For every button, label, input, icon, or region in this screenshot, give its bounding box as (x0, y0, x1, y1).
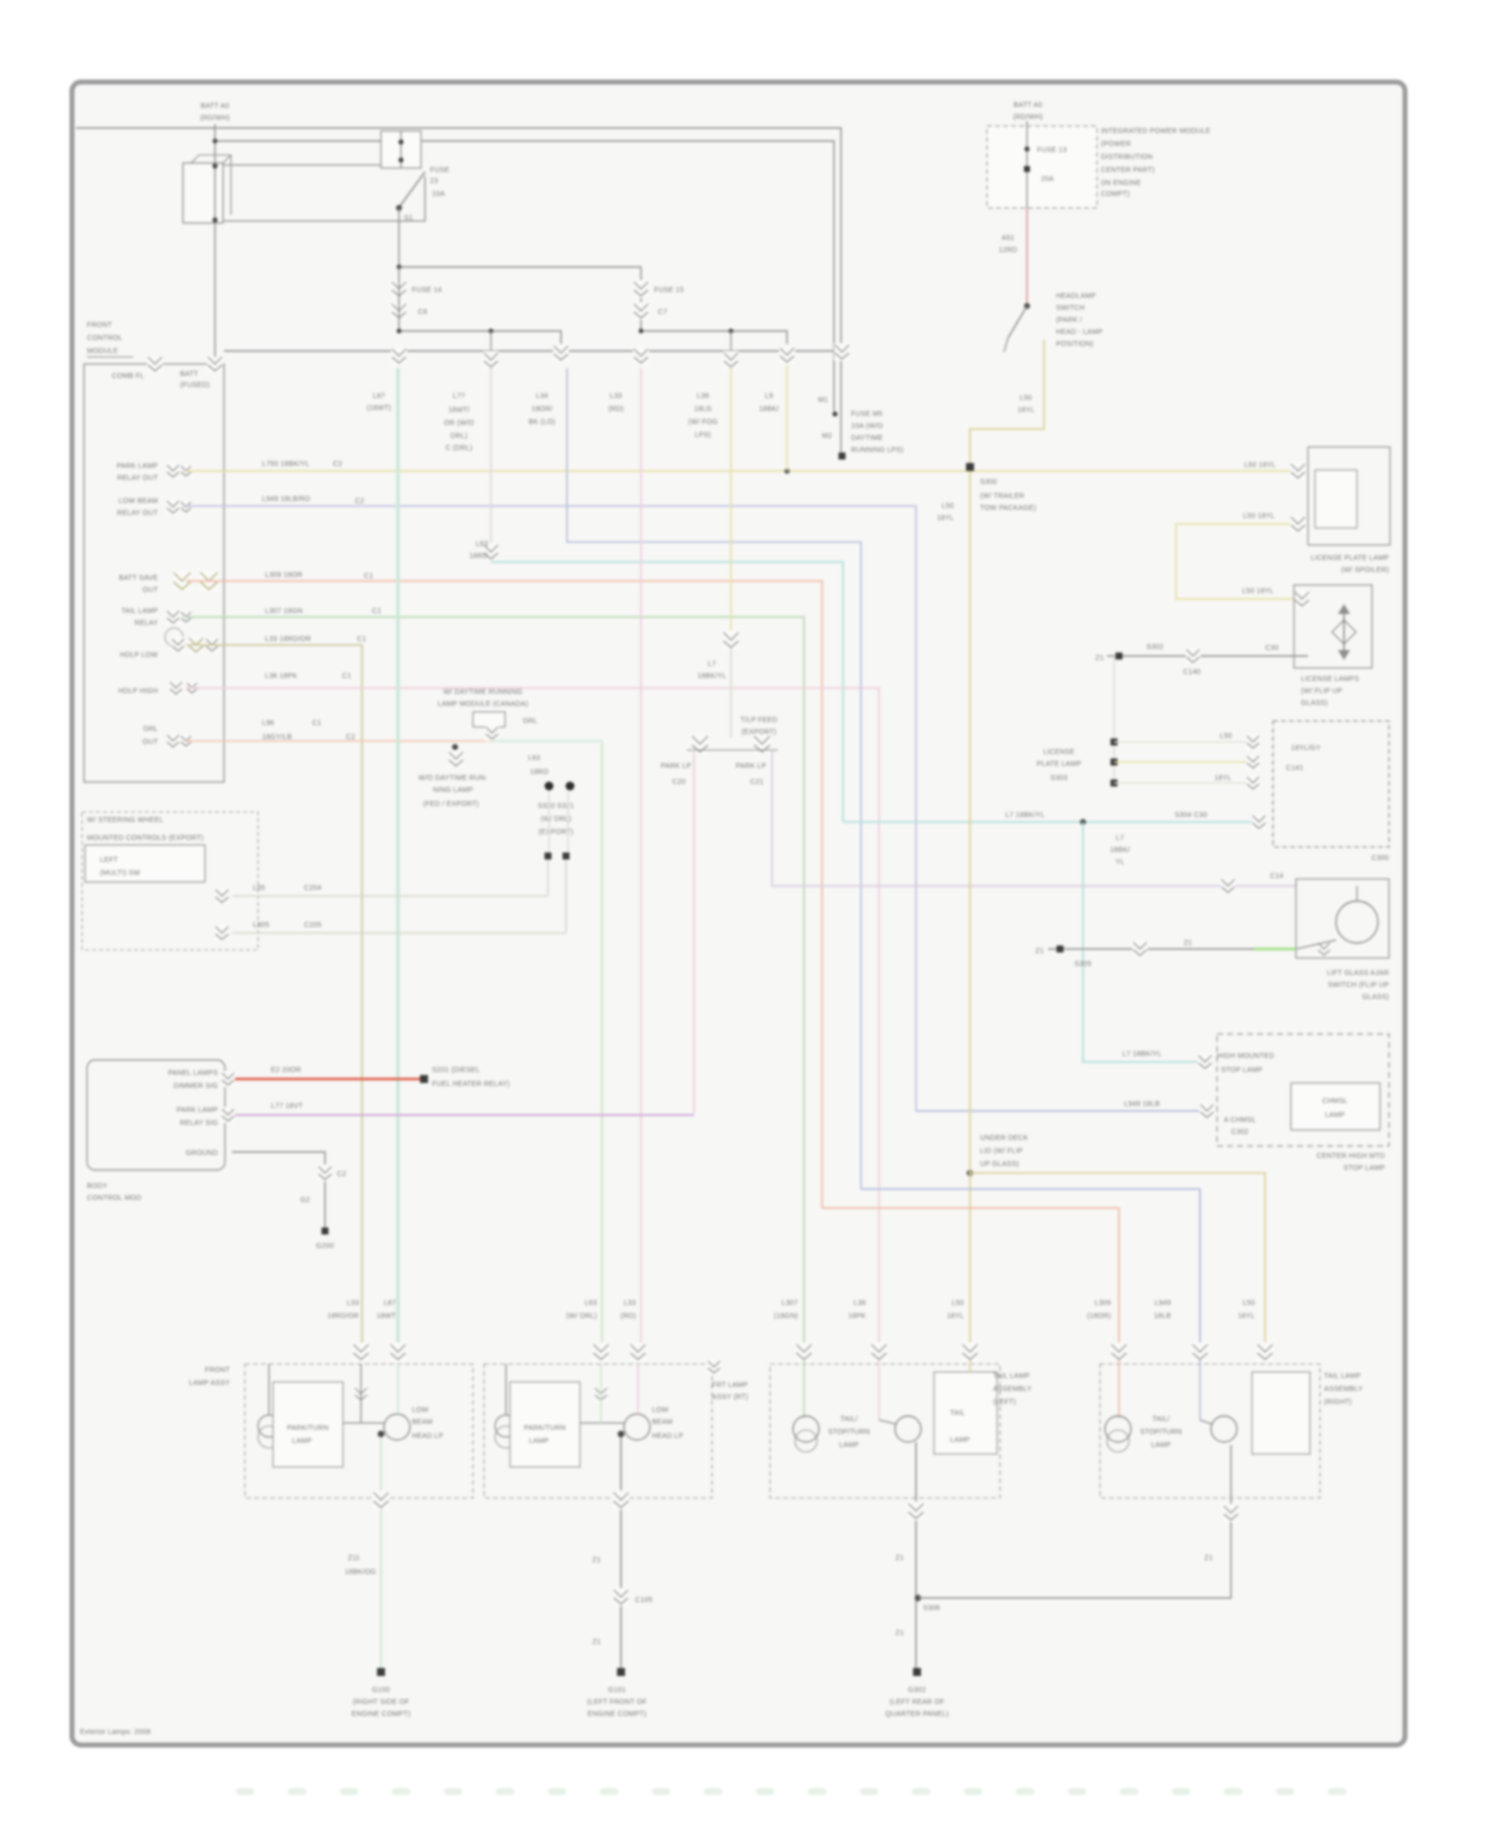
svg-text:Z1: Z1 (592, 1557, 601, 1564)
svg-text:L7 18BK/YL: L7 18BK/YL (1122, 1051, 1161, 1058)
svg-text:L7: L7 (1116, 835, 1124, 842)
svg-text:C7: C7 (658, 309, 667, 316)
svg-text:L34: L34 (536, 393, 548, 400)
svg-text:Z1: Z1 (1204, 1555, 1213, 1562)
svg-text:DRL: DRL (143, 726, 158, 733)
svg-text:TAIL/: TAIL/ (840, 1416, 857, 1423)
svg-text:Z1: Z1 (895, 1555, 904, 1562)
svg-text:18RD/OR: 18RD/OR (327, 1313, 359, 1320)
svg-text:C6: C6 (418, 309, 427, 316)
svg-text:FRONT: FRONT (205, 1367, 231, 1374)
svg-text:(LEFT REAR OF: (LEFT REAR OF (890, 1699, 945, 1706)
svg-text:L50: L50 (1220, 733, 1232, 740)
svg-text:L39: L39 (697, 393, 709, 400)
svg-text:G100: G100 (372, 1687, 390, 1694)
svg-text:RUNNING LPS): RUNNING LPS) (851, 447, 904, 454)
svg-text:LEFT: LEFT (100, 857, 118, 864)
svg-text:18GY/LB: 18GY/LB (262, 734, 292, 741)
svg-text:L36 18PK: L36 18PK (265, 673, 297, 680)
svg-text:C1: C1 (342, 673, 351, 680)
svg-text:C1: C1 (312, 720, 321, 727)
svg-text:(MULTI) SW: (MULTI) SW (100, 870, 141, 877)
svg-text:PARK/TURN: PARK/TURN (524, 1425, 566, 1432)
svg-text:LIFT GLASS AJAR: LIFT GLASS AJAR (1327, 970, 1389, 977)
svg-text:FRONT: FRONT (87, 322, 113, 329)
svg-text:18RD: 18RD (530, 769, 549, 776)
svg-text:C2: C2 (346, 734, 355, 741)
svg-text:G101: G101 (608, 1687, 626, 1694)
svg-text:(LEFT FRONT OF: (LEFT FRONT OF (587, 1699, 647, 1706)
svg-text:CENTER PART): CENTER PART) (1101, 167, 1154, 174)
svg-text:GLASS): GLASS) (1362, 994, 1389, 1001)
svg-text:(RD/WH): (RD/WH) (1013, 114, 1043, 121)
svg-text:L949 18LB/RD: L949 18LB/RD (262, 496, 310, 503)
svg-text:18YL: 18YL (1214, 775, 1231, 782)
svg-text:18BK/YL: 18BK/YL (697, 673, 726, 680)
svg-text:TAIL/: TAIL/ (1152, 1416, 1169, 1423)
svg-text:18YL: 18YL (937, 515, 954, 522)
svg-text:PARK LP: PARK LP (736, 763, 767, 770)
svg-text:LAMP: LAMP (950, 1437, 970, 1444)
svg-text:(W/ TRAILER: (W/ TRAILER (980, 493, 1024, 500)
svg-text:(FUSED): (FUSED) (180, 382, 210, 389)
svg-text:L50: L50 (952, 1300, 964, 1307)
svg-text:(W/ DRL): (W/ DRL) (566, 1313, 597, 1320)
svg-text:LAMP ASSY: LAMP ASSY (189, 1380, 230, 1387)
svg-text:LAMP MODULE (CANADA): LAMP MODULE (CANADA) (438, 701, 529, 708)
svg-text:C1: C1 (372, 608, 381, 615)
svg-text:23: 23 (430, 178, 438, 185)
svg-text:(18OR): (18OR) (1087, 1313, 1111, 1320)
svg-text:C30: C30 (1265, 645, 1278, 652)
svg-text:L307: L307 (782, 1300, 798, 1307)
svg-text:(POWER: (POWER (1101, 141, 1131, 148)
svg-text:A51: A51 (1001, 235, 1014, 242)
svg-text:L949: L949 (1155, 1300, 1171, 1307)
svg-text:C2: C2 (333, 461, 342, 468)
svg-text:L33: L33 (347, 1300, 359, 1307)
svg-text:L7 18BK/YL: L7 18BK/YL (1005, 812, 1044, 819)
svg-text:STOP/TURN: STOP/TURN (1140, 1429, 1182, 1436)
svg-text:L50: L50 (1020, 395, 1032, 402)
svg-text:C205: C205 (304, 922, 322, 929)
svg-text:L55: L55 (253, 885, 265, 892)
svg-text:ASSY (RT): ASSY (RT) (712, 1394, 748, 1401)
svg-text:L87: L87 (384, 1300, 396, 1307)
svg-text:(LEFT): (LEFT) (993, 1399, 1016, 1406)
svg-text:RELAY SIG: RELAY SIG (180, 1120, 218, 1127)
svg-text:RELAY OUT: RELAY OUT (117, 475, 158, 482)
svg-text:MOUNTED CONTROLS (EXPORT): MOUNTED CONTROLS (EXPORT) (87, 835, 204, 842)
svg-text:L309 18OR: L309 18OR (265, 572, 303, 579)
svg-text:COMPT): COMPT) (1101, 191, 1130, 198)
svg-text:(RD): (RD) (620, 1313, 636, 1320)
svg-text:HEAD - LAMP: HEAD - LAMP (1056, 329, 1103, 336)
svg-text:T/LP FEED: T/LP FEED (740, 717, 777, 724)
svg-text:L50 18YL: L50 18YL (1243, 513, 1275, 520)
svg-text:18YL: 18YL (947, 1313, 964, 1320)
svg-text:L63: L63 (476, 541, 488, 548)
svg-text:ASSEMBLY: ASSEMBLY (1324, 1386, 1363, 1393)
svg-text:L87: L87 (373, 393, 385, 400)
svg-text:L309: L309 (1095, 1300, 1111, 1307)
svg-text:BATT A0: BATT A0 (201, 103, 230, 110)
svg-text:HEAD LP: HEAD LP (652, 1433, 683, 1440)
svg-text:BK (LO): BK (LO) (529, 419, 556, 426)
svg-text:UP GLASS): UP GLASS) (980, 1161, 1019, 1168)
svg-text:18WT: 18WT (377, 1313, 397, 1320)
svg-text:PARK LP: PARK LP (661, 763, 692, 770)
svg-text:L750 18BK/YL: L750 18BK/YL (262, 461, 310, 468)
svg-text:PANEL LAMPS: PANEL LAMPS (168, 1070, 218, 1077)
svg-text:Z1: Z1 (1095, 655, 1104, 662)
svg-text:18LB: 18LB (1154, 1313, 1171, 1320)
svg-text:C300: C300 (1371, 855, 1389, 862)
svg-text:BATT: BATT (180, 371, 199, 378)
svg-text:BEAM: BEAM (412, 1419, 433, 1426)
svg-text:Z1: Z1 (895, 1630, 904, 1637)
svg-text:L50: L50 (1243, 1300, 1255, 1307)
svg-text:PARK LAMP: PARK LAMP (177, 1107, 218, 1114)
svg-text:18YL: 18YL (1017, 407, 1034, 414)
svg-text:C302: C302 (1231, 1129, 1249, 1136)
svg-text:L33 18RD/OR: L33 18RD/OR (265, 636, 311, 643)
svg-text:(W/ FOG: (W/ FOG (688, 419, 717, 426)
svg-text:FUSE 14: FUSE 14 (412, 287, 442, 294)
svg-text:C14: C14 (1270, 873, 1283, 880)
svg-text:L50 18YL: L50 18YL (1244, 462, 1276, 469)
svg-text:HDLP LOW: HDLP LOW (120, 652, 158, 659)
svg-text:18YL: 18YL (1238, 1313, 1255, 1320)
svg-text:DIMMER SIG: DIMMER SIG (174, 1083, 218, 1090)
svg-text:LAMP: LAMP (1151, 1442, 1171, 1449)
svg-text:G200: G200 (316, 1243, 334, 1250)
svg-text:L50 18YL: L50 18YL (1242, 588, 1274, 595)
svg-text:C2: C2 (355, 498, 364, 505)
svg-text:S304 C30: S304 C30 (1175, 812, 1208, 819)
svg-text:GROUND: GROUND (186, 1150, 218, 1157)
svg-text:LAMP: LAMP (1325, 1112, 1345, 1119)
svg-text:L96: L96 (262, 720, 274, 727)
svg-text:HEADLAMP: HEADLAMP (1056, 293, 1096, 300)
svg-text:FUEL HEATER RELAY): FUEL HEATER RELAY) (432, 1081, 510, 1088)
svg-text:C (DRL): C (DRL) (445, 445, 472, 452)
svg-text:CONTROL: CONTROL (87, 335, 123, 342)
svg-text:NING LAMP: NING LAMP (433, 787, 473, 794)
svg-text:FUSE M5: FUSE M5 (851, 411, 883, 418)
svg-text:L33: L33 (624, 1300, 636, 1307)
svg-text:HDLP HIGH: HDLP HIGH (118, 688, 158, 695)
svg-text:18RD: 18RD (469, 553, 488, 560)
svg-text:S302: S302 (1146, 644, 1163, 651)
svg-text:DAYTIME: DAYTIME (851, 435, 883, 442)
svg-text:(W/ FLIP UP: (W/ FLIP UP (1301, 688, 1342, 695)
svg-text:W/ DAYTIME RUNNING: W/ DAYTIME RUNNING (443, 689, 522, 696)
svg-text:L307 18GN: L307 18GN (265, 608, 303, 615)
svg-text:PARK LAMP: PARK LAMP (117, 463, 158, 470)
svg-text:C140: C140 (1183, 669, 1201, 676)
svg-text:CHMSL: CHMSL (1322, 1098, 1348, 1105)
svg-text:S320 S321: S320 S321 (538, 803, 574, 810)
svg-text:A CHMSL: A CHMSL (1224, 1117, 1256, 1124)
svg-text:18BK/OG: 18BK/OG (345, 1569, 376, 1576)
svg-text:10A (W/O: 10A (W/O (851, 423, 883, 430)
svg-text:Z1: Z1 (592, 1639, 601, 1646)
svg-text:TAIL: TAIL (950, 1410, 965, 1417)
svg-text:S305: S305 (1074, 961, 1091, 968)
svg-text:S201 (DIESEL: S201 (DIESEL (432, 1067, 480, 1074)
svg-text:Z11: Z11 (348, 1555, 360, 1562)
svg-text:STOP/TURN: STOP/TURN (828, 1429, 870, 1436)
svg-text:C20: C20 (672, 779, 685, 786)
svg-text:(RIGHT): (RIGHT) (1324, 1399, 1352, 1406)
svg-text:HEAD LP: HEAD LP (412, 1433, 443, 1440)
svg-text:GLASS): GLASS) (1301, 700, 1328, 707)
svg-text:S306: S306 (923, 1605, 940, 1612)
svg-text:ASSEMBLY: ASSEMBLY (993, 1386, 1032, 1393)
svg-text:(W/ DRL): (W/ DRL) (541, 816, 572, 823)
svg-text:(RD): (RD) (608, 406, 624, 413)
svg-text:LICENSE: LICENSE (1043, 749, 1074, 756)
svg-text:(18WT): (18WT) (367, 405, 392, 412)
svg-text:C1: C1 (364, 573, 373, 580)
svg-text:W/O DAYTIME RUN-: W/O DAYTIME RUN- (418, 775, 488, 782)
svg-text:DISTRIBUTION: DISTRIBUTION (1101, 154, 1153, 161)
svg-text:OUT: OUT (143, 739, 159, 746)
svg-text:ENGINE COMPT): ENGINE COMPT) (352, 1711, 411, 1718)
svg-text:L36: L36 (854, 1300, 866, 1307)
svg-text:STOP LAMP: STOP LAMP (1343, 1165, 1385, 1172)
svg-text:BATT SAVE: BATT SAVE (119, 575, 158, 582)
svg-text:INTEGRATED POWER MODULE: INTEGRATED POWER MODULE (1101, 128, 1211, 135)
svg-text:10A: 10A (432, 191, 445, 198)
svg-text:S300: S300 (980, 479, 997, 486)
svg-text:C141: C141 (1286, 765, 1304, 772)
svg-text:LOW BEAM: LOW BEAM (119, 498, 158, 505)
svg-text:C21: C21 (750, 779, 763, 786)
svg-text:Exterior Lamps: 2008: Exterior Lamps: 2008 (80, 1729, 151, 1736)
svg-text:(EXPORT): (EXPORT) (742, 729, 777, 736)
svg-text:RELAY OUT: RELAY OUT (117, 510, 158, 517)
svg-text:18BK/: 18BK/ (1110, 847, 1130, 854)
svg-text:(W/ SPOILER): (W/ SPOILER) (1341, 567, 1389, 574)
svg-text:(RIGHT SIDE OF: (RIGHT SIDE OF (353, 1699, 410, 1706)
svg-text:STOP LAMP: STOP LAMP (1221, 1067, 1263, 1074)
svg-text:18PK: 18PK (848, 1313, 866, 1320)
svg-text:MODULE: MODULE (87, 348, 118, 355)
svg-text:LAMP: LAMP (292, 1438, 312, 1445)
svg-text:12RD: 12RD (999, 247, 1018, 254)
svg-text:(IN ENGINE: (IN ENGINE (1101, 180, 1141, 187)
svg-text:TAIL LAMP: TAIL LAMP (1324, 1373, 1361, 1380)
svg-text:PLATE LAMP: PLATE LAMP (1037, 761, 1082, 768)
svg-text:SWITCH (FLIP UP: SWITCH (FLIP UP (1328, 982, 1389, 989)
svg-text:(18GN): (18GN) (774, 1313, 798, 1320)
svg-text:L7: L7 (708, 661, 716, 668)
svg-text:DRL): DRL) (450, 433, 467, 440)
svg-text:SWITCH: SWITCH (1056, 305, 1085, 312)
svg-text:20A: 20A (1041, 176, 1054, 183)
svg-text:Z1: Z1 (1035, 948, 1044, 955)
svg-text:BATT A0: BATT A0 (1014, 102, 1043, 109)
svg-text:OUT: OUT (143, 587, 159, 594)
svg-text:G2: G2 (300, 1197, 310, 1204)
svg-text:LICENSE LAMPS: LICENSE LAMPS (1301, 676, 1359, 683)
svg-text:COMB FL: COMB FL (112, 373, 145, 380)
svg-text:18BK/: 18BK/ (759, 406, 779, 413)
svg-text:L50: L50 (942, 503, 954, 510)
svg-text:LAMP: LAMP (529, 1438, 549, 1445)
svg-text:BEAM: BEAM (652, 1419, 673, 1426)
svg-text:C1: C1 (357, 636, 366, 643)
svg-text:L77: L77 (453, 393, 465, 400)
svg-text:M2: M2 (822, 433, 832, 440)
svg-text:CENTER HIGH MTD: CENTER HIGH MTD (1317, 1153, 1385, 1160)
svg-text:DRL: DRL (523, 718, 538, 725)
svg-text:L77 18VT: L77 18VT (271, 1103, 303, 1110)
svg-text:TAIL LAMP: TAIL LAMP (993, 1373, 1030, 1380)
svg-text:18LG: 18LG (694, 406, 712, 413)
svg-text:LAMP: LAMP (839, 1442, 859, 1449)
svg-text:TOW PACKAGE): TOW PACKAGE) (980, 505, 1036, 512)
svg-text:C105: C105 (635, 1597, 653, 1604)
svg-text:L63: L63 (528, 755, 540, 762)
svg-text:CONTROL MOD: CONTROL MOD (87, 1195, 141, 1202)
svg-text:(PARK /: (PARK / (1056, 317, 1082, 324)
svg-text:LOW: LOW (652, 1407, 669, 1414)
svg-text:18YL/GY: 18YL/GY (1291, 745, 1321, 752)
svg-text:W/ STEERING WHEEL: W/ STEERING WHEEL (87, 817, 164, 824)
svg-text:(RD/WH): (RD/WH) (200, 115, 230, 122)
svg-text:G302: G302 (908, 1687, 926, 1694)
svg-text:BODY: BODY (87, 1183, 108, 1190)
svg-text:(FED / EXPORT): (FED / EXPORT) (423, 801, 479, 808)
svg-text:S1: S1 (404, 215, 413, 222)
svg-text:FUSE: FUSE (430, 167, 450, 174)
svg-text:TAIL LAMP: TAIL LAMP (121, 608, 158, 615)
svg-text:FRT LAMP: FRT LAMP (712, 1382, 748, 1389)
svg-text:L33: L33 (610, 393, 622, 400)
svg-text:S303: S303 (1050, 775, 1067, 782)
svg-text:LOW: LOW (412, 1407, 429, 1414)
svg-text:C2: C2 (337, 1171, 346, 1178)
svg-text:C204: C204 (304, 885, 322, 892)
svg-text:LID (W/ FLIP: LID (W/ FLIP (980, 1148, 1023, 1155)
svg-text:RELAY: RELAY (135, 620, 159, 627)
svg-text:M1: M1 (818, 397, 828, 404)
svg-text:ENGINE COMPT): ENGINE COMPT) (588, 1711, 647, 1718)
svg-text:E2 20OR: E2 20OR (271, 1067, 301, 1074)
svg-text:Z1: Z1 (1184, 940, 1193, 947)
svg-text:OR (W/O: OR (W/O (444, 420, 475, 427)
svg-text:FUSE 15: FUSE 15 (654, 287, 684, 294)
svg-text:L9: L9 (765, 393, 773, 400)
svg-text:L949 18LB: L949 18LB (1124, 1101, 1160, 1108)
svg-text:18OR/: 18OR/ (531, 406, 552, 413)
svg-text:YL: YL (1116, 859, 1125, 866)
svg-text:L63: L63 (585, 1300, 597, 1307)
svg-text:HIGH MOUNTED: HIGH MOUNTED (1217, 1053, 1274, 1060)
svg-text:PARK/TURN: PARK/TURN (287, 1425, 329, 1432)
svg-text:QUARTER PANEL): QUARTER PANEL) (885, 1711, 949, 1718)
svg-text:UNDER DECK: UNDER DECK (980, 1135, 1028, 1142)
svg-text:LICENSE PLATE LAMP: LICENSE PLATE LAMP (1311, 555, 1389, 562)
svg-text:POSITION): POSITION) (1056, 341, 1094, 348)
svg-text:L305: L305 (253, 922, 269, 929)
svg-text:18WT/: 18WT/ (448, 407, 470, 414)
svg-text:LPS): LPS) (695, 432, 711, 439)
svg-text:FUSE 13: FUSE 13 (1037, 147, 1067, 154)
